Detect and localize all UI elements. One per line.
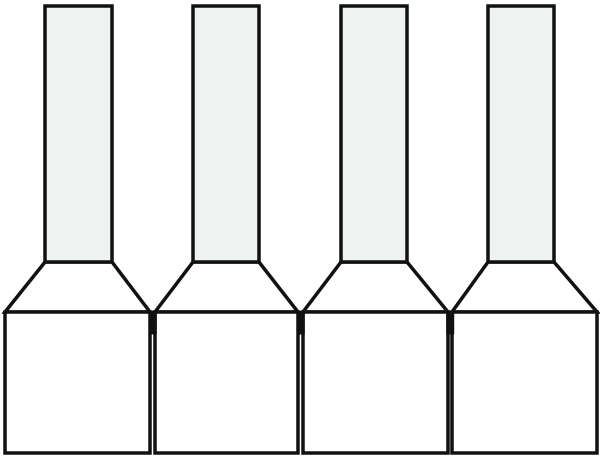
ferrule-4-tube bbox=[488, 6, 554, 262]
body-joint-3 bbox=[446, 311, 454, 335]
body-joint-2 bbox=[297, 311, 305, 335]
ferrule-1 bbox=[5, 6, 150, 453]
ferrule-1-funnel bbox=[5, 262, 150, 312]
ferrule-4-funnel bbox=[452, 262, 597, 312]
body-joint-1 bbox=[149, 311, 157, 335]
ferrule-2-funnel bbox=[155, 262, 298, 312]
ferrule-3-tube bbox=[341, 6, 407, 262]
ferrule-3-funnel bbox=[303, 262, 448, 312]
ferrule-3 bbox=[303, 6, 448, 453]
ferrule-2-body bbox=[155, 312, 298, 453]
ferrule-4-body bbox=[452, 312, 597, 453]
ferrules-illustration bbox=[0, 0, 600, 464]
ferrule-4 bbox=[452, 6, 597, 453]
page bbox=[0, 0, 600, 464]
ferrule-2-tube bbox=[193, 6, 259, 262]
ferrule-3-body bbox=[303, 312, 448, 453]
ferrule-2 bbox=[155, 6, 298, 453]
ferrule-1-body bbox=[5, 312, 150, 453]
ferrule-1-tube bbox=[45, 6, 112, 262]
